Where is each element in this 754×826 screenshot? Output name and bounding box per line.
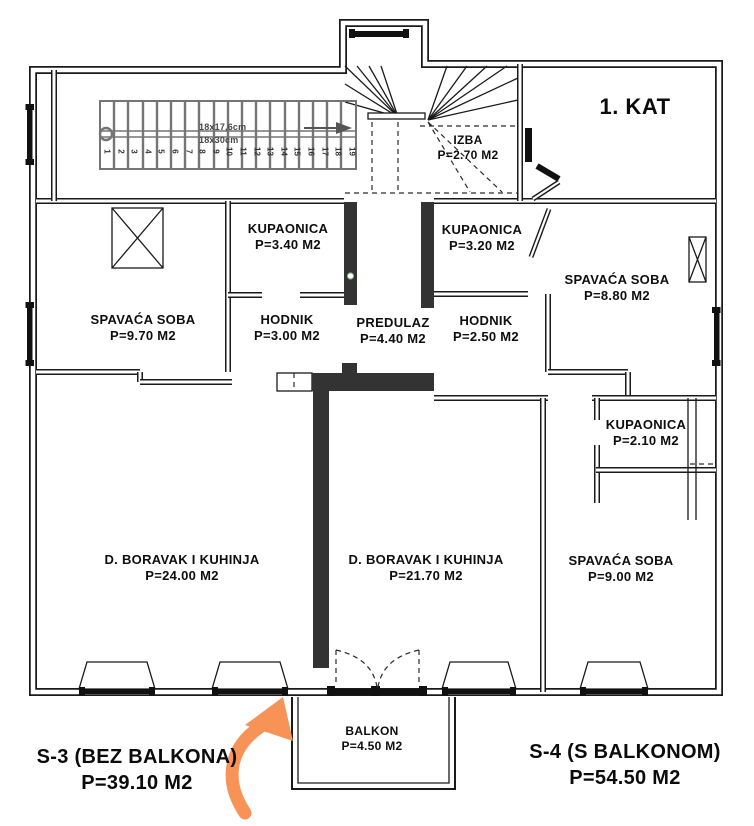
room-label-kupaonica-1: KUPAONICAP=3.40 M2 bbox=[208, 221, 368, 252]
room-label-boravak-kuhinja-2: D. BORAVAK I KUHINJAP=21.70 M2 bbox=[316, 552, 536, 583]
winder-stair bbox=[345, 66, 518, 193]
room-label-balkon: BALKONP=4.50 M2 bbox=[292, 724, 452, 753]
windows bbox=[26, 29, 721, 696]
stair-step-numbers: 12 34 56 78 910 1112 1314 1516 1718 19 bbox=[100, 147, 359, 156]
room-label-boravak-kuhinja-1: D. BORAVAK I KUHINJAP=24.00 M2 bbox=[72, 552, 292, 583]
floorplan-drawing bbox=[0, 0, 754, 826]
room-label-kupaonica-2: KUPAONICAP=3.20 M2 bbox=[402, 222, 562, 253]
outer-walls bbox=[33, 23, 719, 692]
floor-title: 1. KAT bbox=[545, 94, 725, 120]
room-label-izba: IZBAP=2.70 M2 bbox=[388, 133, 548, 162]
room-label-spavaca-soba-1: SPAVAĆA SOBAP=8.80 M2 bbox=[537, 272, 697, 303]
stair-dimensions: 18x17,6cm 18x30cm bbox=[199, 121, 246, 147]
room-label-hodnik-2: HODNIKP=2.50 M2 bbox=[406, 313, 566, 344]
room-label-kupaonica-3: KUPAONICAP=2.10 M2 bbox=[566, 417, 726, 448]
unit-label-s4: S-4 (S BALKONOM)P=54.50 M2 bbox=[505, 739, 745, 791]
room-label-spavaca-soba-3: SPAVAĆA SOBAP=9.00 M2 bbox=[511, 553, 731, 584]
floorplan-page: 18x17,6cm 18x30cm 12 34 56 78 910 1112 1… bbox=[0, 0, 754, 826]
balcony bbox=[292, 650, 455, 789]
unit-label-s3: S-3 (BEZ BALKONA)P=39.10 M2 bbox=[17, 744, 257, 796]
room-label-spavaca-soba-2: SPAVAĆA SOBAP=9.70 M2 bbox=[63, 312, 223, 343]
